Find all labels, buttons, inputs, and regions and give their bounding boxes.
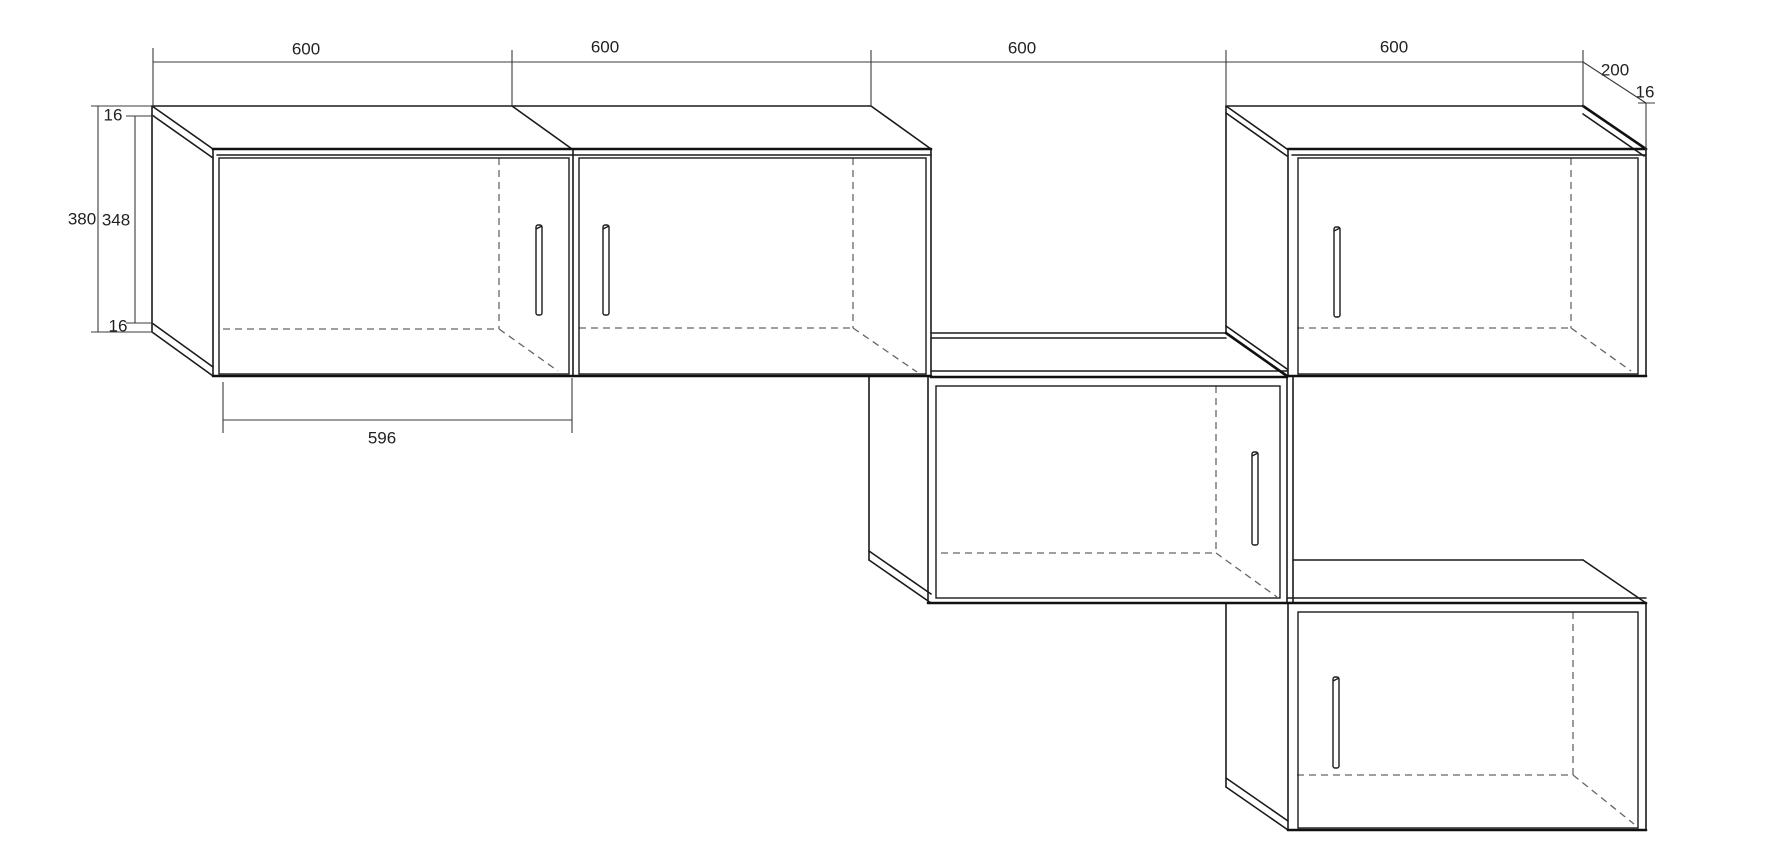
- dimension-label-height-overall: 380: [68, 210, 96, 229]
- hidden-interior-edge-line: [1571, 328, 1631, 371]
- dimension-label-door-width: 596: [368, 429, 396, 448]
- hidden-interior-edge-line: [1216, 553, 1277, 597]
- door-cabinet-5: [1298, 612, 1638, 828]
- hidden-interior-edge-line: [499, 329, 558, 371]
- dimension-label-width-cabinet-4: 600: [1380, 38, 1408, 57]
- cabinet-edge-line: [152, 332, 213, 376]
- dimension-label-depth: 200: [1601, 61, 1629, 80]
- cabinet-edge-line: [869, 551, 931, 594]
- handle-cabinet-4-icon: [1334, 227, 1340, 317]
- cabinet-edge-line: [1583, 560, 1646, 603]
- cabinet-edge-line: [152, 106, 213, 149]
- door-cabinet-3: [936, 386, 1280, 598]
- dimension-label-width-cabinet-1: 600: [292, 40, 320, 59]
- cabinet-edge-line: [1226, 778, 1288, 821]
- cabinet-edge-line: [869, 560, 931, 603]
- cabinet-edge-line: [871, 106, 931, 149]
- dimension-label-panel-16-bottom: 16: [109, 317, 128, 336]
- cabinet-front-edge-line: [1583, 106, 1646, 149]
- door-cabinet-4: [1298, 158, 1638, 374]
- cabinet-edge-line: [152, 323, 213, 367]
- dimension-label-height-inner: 348: [102, 211, 130, 230]
- cabinet-edge-line: [512, 106, 572, 149]
- door-cabinet-2: [579, 158, 926, 374]
- technical-drawing-canvas: 600600600600200161638034816596: [0, 0, 1766, 848]
- hidden-interior-edge-line: [853, 328, 917, 372]
- handle-cabinet-2-icon: [603, 225, 609, 315]
- cabinet-front-edge-line: [1226, 333, 1287, 376]
- cabinet-drawing: 600600600600200161638034816596: [0, 0, 1766, 848]
- dimension-label-width-cabinet-3: 600: [1008, 39, 1036, 58]
- cabinet-edge-line: [1226, 326, 1287, 369]
- handle-cabinet-5-icon: [1333, 677, 1339, 768]
- dimension-label-width-cabinet-2: 600: [591, 38, 619, 57]
- dimension-label-panel-16-top: 16: [104, 106, 123, 125]
- dimension-label-panel-16-right: 16: [1636, 83, 1655, 102]
- handle-cabinet-3-icon: [1252, 452, 1258, 545]
- hidden-interior-edge-line: [1573, 775, 1634, 824]
- cabinet-edge-line: [1226, 787, 1288, 830]
- handle-cabinet-1-icon: [536, 225, 542, 315]
- cabinet-edge-line: [1226, 106, 1287, 149]
- door-cabinet-1: [219, 158, 569, 374]
- cabinet-edge-line: [152, 115, 213, 158]
- cabinet-edge-line: [1226, 113, 1287, 156]
